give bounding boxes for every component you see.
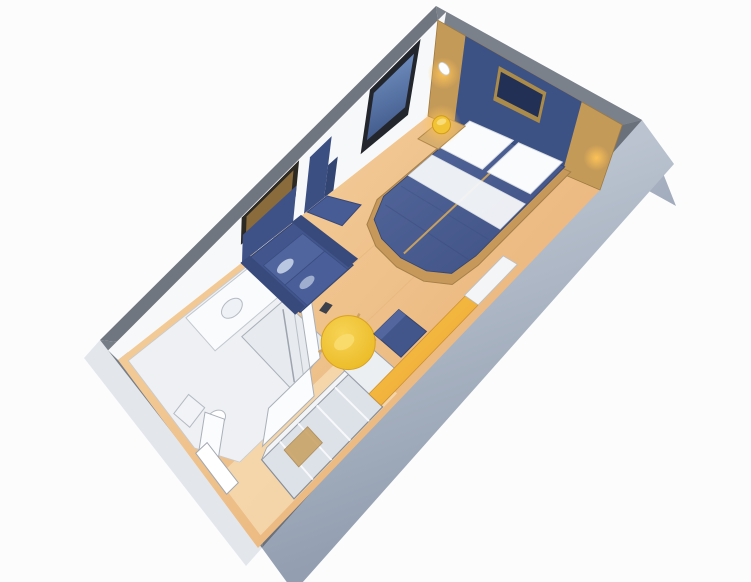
cabin-floorplan-stage — [0, 0, 751, 582]
far-corner-glow — [584, 145, 610, 171]
floorplan-svg — [0, 0, 751, 582]
